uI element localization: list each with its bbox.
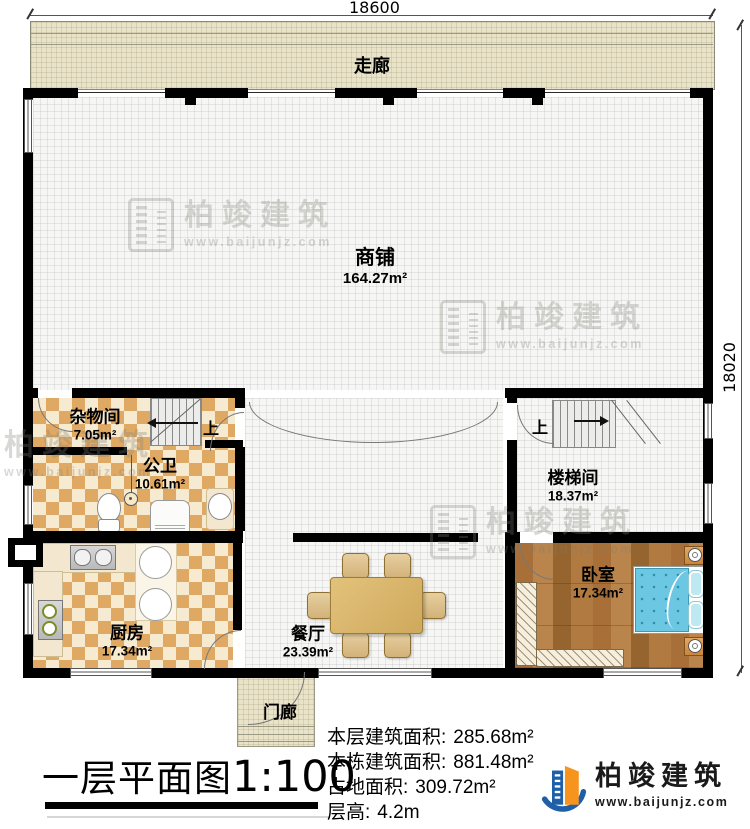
wall [235,447,245,531]
brand-block: 柏竣建筑 www.baijunjz.com [540,762,728,816]
dining-chair [420,592,446,619]
wall [532,98,543,105]
title-thin-line [47,816,330,818]
watermark-logo-icon [440,300,486,354]
dining-chair [384,553,411,579]
wall [503,88,545,98]
room-label-bathroom: 公卫 10.61m² [135,457,185,494]
room-label-bedroom: 卧室 17.34m² [573,566,623,603]
plan-title-text: 一层平面图 [42,748,232,802]
storefront-line [417,92,503,93]
window [704,403,713,439]
window [24,99,33,153]
wall [505,388,713,398]
wardrobe [516,582,537,666]
dimension-right-value: 18020 [720,342,739,393]
wall [30,88,78,98]
stat-floor-height: 层高:4.2m [327,800,534,825]
lamp-icon [688,548,702,562]
window [318,668,432,678]
room-label-corridor: 走廊 [354,56,390,78]
dimension-tick [26,8,33,19]
bathroom-sink-icon [208,493,232,520]
sink-bowl [95,549,112,566]
wall [233,543,242,630]
stove-burner [42,604,57,619]
window [24,485,33,525]
dining-table-icon [330,577,423,634]
window [70,668,152,678]
watermark: 柏竣建筑 www.baijunjz.com [128,198,336,252]
dimension-line-right [741,25,742,673]
stove-burner [42,621,57,636]
room-label-storage: 杂物间 7.05m² [70,408,121,445]
wall [383,98,394,105]
porch-step [238,734,314,735]
watermark: 柏竣建筑 www.baijunjz.com [440,300,648,354]
watermark-logo-icon [128,198,174,252]
brand-name: 柏竣建筑 [595,762,728,792]
kitchen-round-counter [139,546,172,579]
wall [23,388,38,398]
brand-logo-icon [540,762,588,816]
stat-footprint-area: 占地面积:309.72m² [327,775,534,800]
stair-up-label: 上 [532,414,548,438]
title-underline [45,802,318,809]
stair-up-arrow-icon [147,418,156,428]
wall [165,88,248,98]
room-label-dining: 餐厅 23.39m² [283,625,333,662]
flue-box [8,538,43,567]
dimension-tick [736,665,743,676]
kitchen-round-counter [139,588,172,621]
brand-url: www.baijunjz.com [595,795,728,809]
dining-chair [342,632,369,658]
storefront-line [78,92,165,93]
dining-chair [384,632,411,658]
stat-building-area: 本栋建筑面积:881.48m² [327,750,534,775]
wardrobe [536,649,624,667]
wall [72,388,245,398]
window [704,483,713,524]
room-label-shop: 商铺 164.27m² [343,246,407,288]
wall [703,88,713,678]
stair-up-arrow-line [156,422,198,424]
dimension-top-value: 18600 [349,0,400,17]
toilet-icon [97,493,121,522]
corridor-edge-line [30,44,713,45]
lamp-icon [688,639,702,653]
sink-bowl [74,549,91,566]
storefront-line [248,92,335,93]
room-label-kitchen: 厨房 17.34m² [102,624,152,661]
wall [23,531,243,543]
room-label-porch: 门廊 [263,703,297,723]
dimension-tick [708,8,715,19]
porch-step [238,726,314,727]
wall [235,398,245,408]
wall [507,398,517,403]
corridor-edge-line [30,33,713,34]
plan-title: 一层平面图 1:100 [42,748,356,802]
dimension-tick [736,19,743,30]
stair-up-arrow-icon [600,416,609,426]
stats-block: 本层建筑面积:285.68m² 本栋建筑面积:881.48m² 占地面积:309… [327,725,534,825]
wall [690,88,713,98]
wall [505,543,515,668]
watermark: 柏竣建筑 www.baijunjz.com [430,505,638,559]
stat-floor-area: 本层建筑面积:285.68m² [327,725,534,750]
floor-plan-page: 18600 18020 [0,0,750,829]
stair-up-arrow-line [574,420,600,422]
watermark-logo-icon [430,505,476,559]
wall [335,88,417,98]
room-label-stairwell: 楼梯间 18.37m² [548,469,599,506]
ceiling-lamp-icon [124,492,138,506]
wall [185,98,196,105]
dining-chair [342,553,369,579]
storefront-line [545,92,690,93]
window [24,583,33,635]
stair-up-label: 上 [203,415,219,439]
window [603,668,682,678]
porch-step [238,741,314,742]
